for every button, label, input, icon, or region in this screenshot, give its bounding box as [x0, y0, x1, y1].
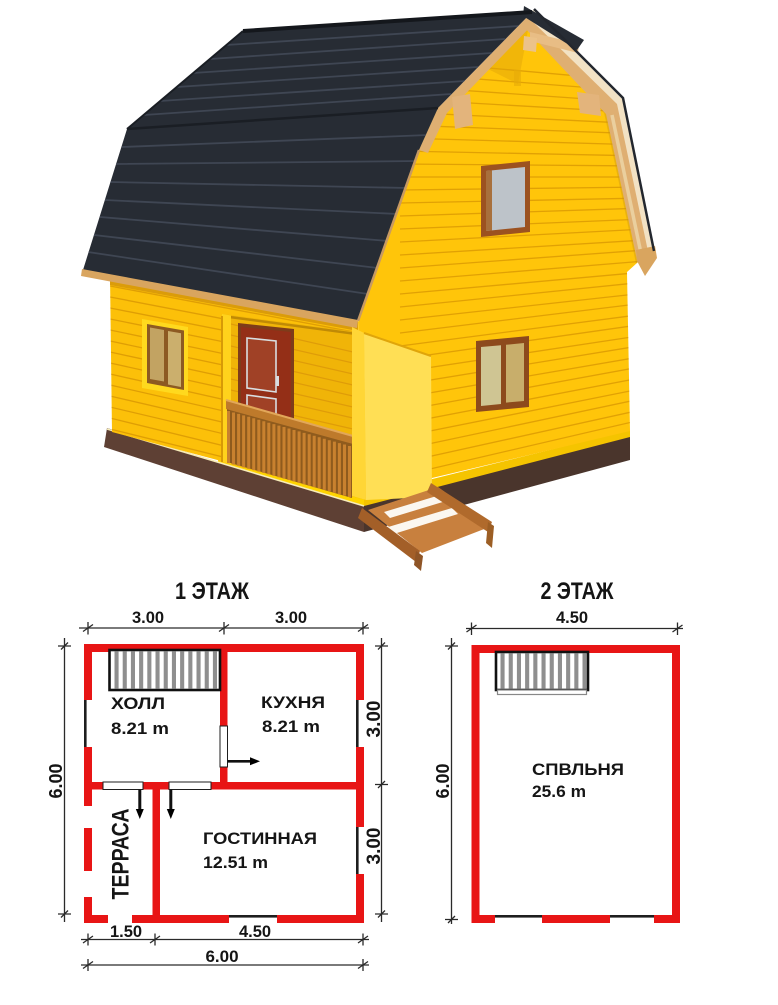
svg-text:3.00: 3.00	[275, 609, 307, 627]
svg-text:4.50: 4.50	[239, 923, 271, 941]
svg-text:2 ЭТАЖ: 2 ЭТАЖ	[541, 578, 614, 605]
svg-text:1.50: 1.50	[110, 923, 142, 941]
svg-text:3.00: 3.00	[364, 828, 385, 865]
svg-text:3.00: 3.00	[132, 609, 164, 627]
svg-text:КУХНЯ: КУХНЯ	[261, 693, 325, 712]
svg-text:ГОСТИННАЯ: ГОСТИННАЯ	[203, 829, 317, 848]
svg-text:12.51 m: 12.51 m	[203, 853, 268, 872]
svg-text:СПВЛЬНЯ: СПВЛЬНЯ	[532, 760, 624, 779]
svg-text:6.00: 6.00	[205, 947, 238, 966]
svg-text:1 ЭТАЖ: 1 ЭТАЖ	[175, 578, 249, 605]
svg-text:4.50: 4.50	[556, 609, 588, 627]
svg-text:25.6 m: 25.6 m	[532, 782, 586, 801]
svg-text:3.00: 3.00	[364, 701, 385, 738]
svg-text:6.00: 6.00	[433, 763, 453, 798]
svg-text:ТЕРРАСА: ТЕРРАСА	[108, 809, 135, 900]
svg-text:8.21 m: 8.21 m	[111, 719, 169, 738]
svg-text:8.21 m: 8.21 m	[262, 717, 320, 736]
svg-text:6.00: 6.00	[46, 763, 66, 798]
svg-text:ХОЛЛ: ХОЛЛ	[111, 694, 165, 713]
